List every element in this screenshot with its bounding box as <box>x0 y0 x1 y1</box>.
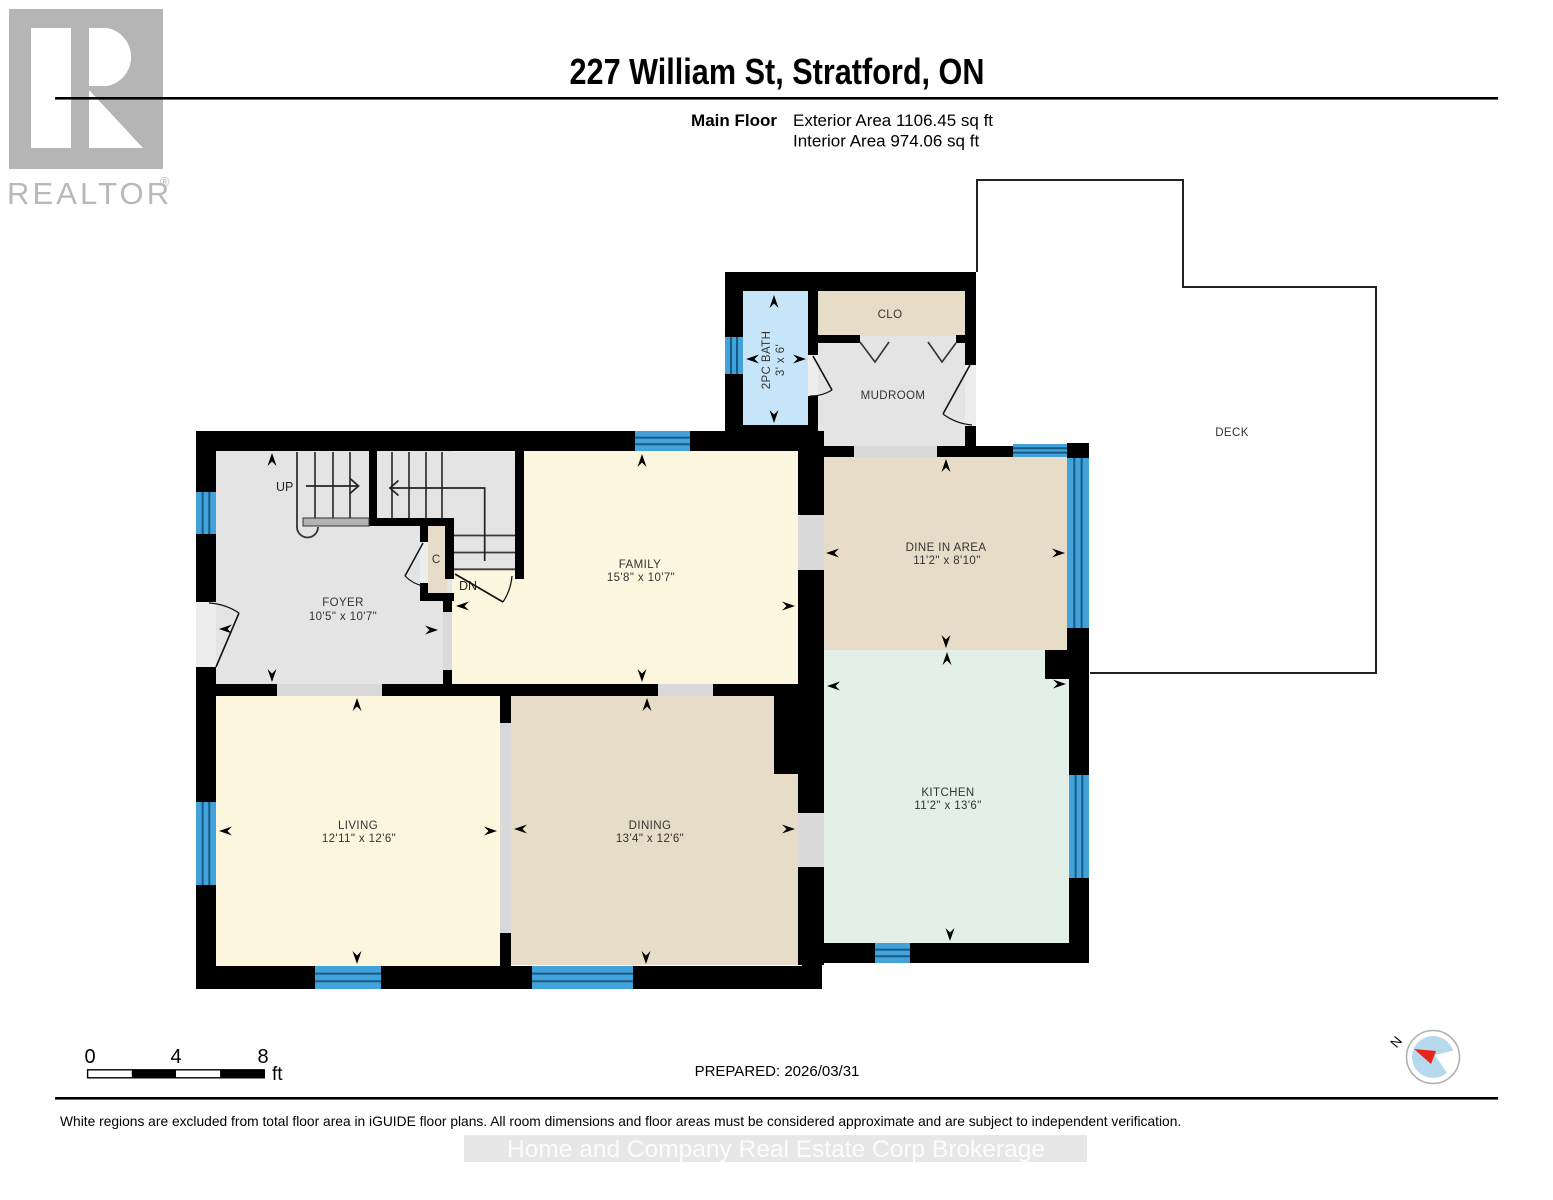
svg-text:2PC BATH: 2PC BATH <box>761 331 773 390</box>
svg-text:4: 4 <box>170 1046 181 1068</box>
svg-text:Main Floor: Main Floor <box>691 111 777 130</box>
svg-text:3' x 6': 3' x 6' <box>775 344 787 376</box>
svg-text:FOYER: FOYER <box>322 597 364 609</box>
svg-text:227 William St, Stratford, ON: 227 William St, Stratford, ON <box>570 51 985 92</box>
svg-text:UP: UP <box>276 480 293 494</box>
svg-text:CLO: CLO <box>878 309 903 321</box>
svg-text:0: 0 <box>84 1046 95 1068</box>
svg-text:KITCHEN: KITCHEN <box>921 787 974 799</box>
svg-text:Home and Company Real Estate C: Home and Company Real Estate Corp Broker… <box>507 1136 1045 1163</box>
svg-text:10'5" x 10'7": 10'5" x 10'7" <box>309 611 377 623</box>
svg-text:DECK: DECK <box>1215 427 1249 439</box>
svg-text:ft: ft <box>272 1064 283 1085</box>
svg-text:DINING: DINING <box>629 820 672 832</box>
svg-text:FAMILY: FAMILY <box>619 559 661 571</box>
svg-text:White regions are excluded fro: White regions are excluded from total fl… <box>60 1114 1181 1129</box>
svg-text:C: C <box>432 554 440 566</box>
svg-text:MUDROOM: MUDROOM <box>861 390 926 402</box>
svg-text:8: 8 <box>257 1046 268 1068</box>
svg-text:Exterior Area 1106.45 sq ft: Exterior Area 1106.45 sq ft <box>793 111 993 130</box>
svg-text:Interior Area 974.06 sq ft: Interior Area 974.06 sq ft <box>793 132 979 151</box>
svg-text:11'2" x 13'6": 11'2" x 13'6" <box>914 800 981 812</box>
svg-text:12'11" x 12'6": 12'11" x 12'6" <box>322 833 396 845</box>
svg-text:REALTOR: REALTOR <box>7 176 172 211</box>
svg-text:PREPARED: 2026/03/31: PREPARED: 2026/03/31 <box>695 1063 860 1080</box>
svg-text:N: N <box>1387 1033 1405 1050</box>
svg-text:11'2" x 8'10": 11'2" x 8'10" <box>913 555 980 567</box>
svg-text:LIVING: LIVING <box>338 820 378 832</box>
svg-text:DINE IN AREA: DINE IN AREA <box>906 542 987 554</box>
svg-text:13'4" x 12'6": 13'4" x 12'6" <box>616 833 684 845</box>
svg-text:15'8" x 10'7": 15'8" x 10'7" <box>607 572 675 584</box>
svg-text:®: ® <box>160 174 170 189</box>
